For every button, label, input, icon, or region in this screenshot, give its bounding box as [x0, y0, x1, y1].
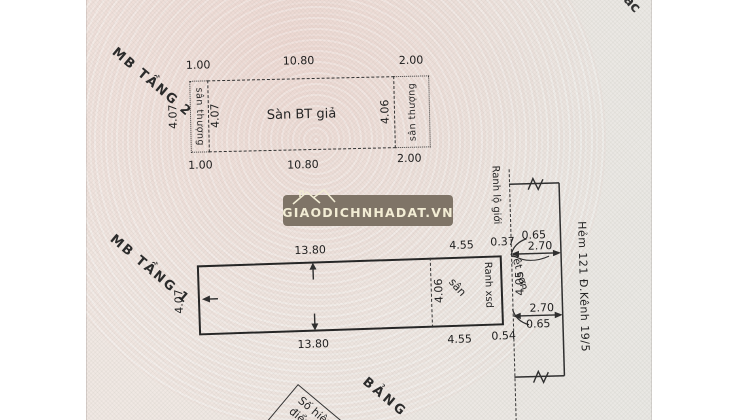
floor1-plan: 13.80 4.55 0.37 4.07 4.06 sân Ranh xsd 1… — [194, 237, 528, 360]
photo-margin-right — [652, 0, 740, 420]
floor2-terrace-right: sân thượng — [394, 75, 431, 148]
dim-road-bottom-width: 2.70 — [529, 301, 554, 315]
floor1-dimension-ticks — [194, 237, 528, 360]
dim-f1-height-left: 4.07 — [172, 284, 186, 318]
dim-f2-bottom-left: 1.00 — [188, 158, 213, 172]
dim-f2-height-right: 4.06 — [378, 95, 392, 129]
floor2-terrace-right-label: sân thượng — [406, 82, 418, 141]
dim-road-bottom-offset: 0.65 — [526, 317, 551, 331]
floor2-slab: Sàn BT giả — [207, 76, 396, 152]
dim-f2-top-right: 2.00 — [399, 53, 424, 67]
photo-margin-left — [0, 0, 86, 420]
watermark-badge: GIAODICHNHADAT.VN — [283, 195, 453, 226]
alley-dimension-lines — [491, 156, 616, 420]
dim-f2-top-left: 1.00 — [186, 58, 211, 72]
floor2-terrace-left: sân thượng — [189, 80, 209, 152]
scanned-floor-plan-document: ác MB TẦNG 2 1.00 10.80 2.00 sân thượng … — [0, 0, 740, 420]
floor2-slab-label: Sàn BT giả — [267, 106, 337, 123]
house-icon — [291, 187, 337, 207]
dim-road-top-width: 2.70 — [528, 239, 553, 253]
dim-f2-bottom-right: 2.00 — [397, 152, 422, 166]
dim-f2-bottom-mid: 10.80 — [287, 158, 319, 172]
dim-f2-height-outer: 4.07 — [166, 100, 180, 134]
floor2-plan: 1.00 10.80 2.00 sân thượng Sàn BT giả sâ… — [187, 49, 440, 177]
dim-f1-bottom-main: 13.80 — [297, 337, 329, 351]
dim-f1-bottom-san: 4.55 — [447, 332, 472, 346]
dim-f2-top-mid: 10.80 — [283, 54, 315, 68]
floor2-terrace-left-label: sân thượng — [193, 87, 205, 146]
dim-f2-height-left: 4.07 — [208, 99, 222, 133]
road-boundary-group: Ranh lộ giới 0.65 2.70 4.05 vệt sơn 2.70… — [491, 156, 616, 420]
